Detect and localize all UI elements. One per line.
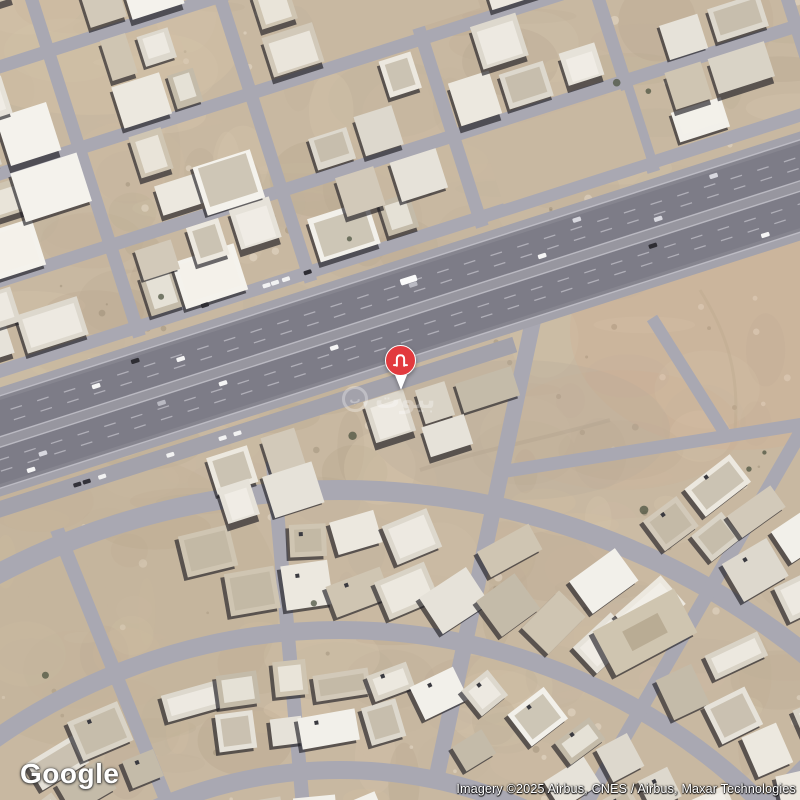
satellite-imagery	[0, 0, 800, 800]
marker-head	[385, 345, 416, 376]
map-viewport[interactable]: ب بيوت Google Imagery ©2025 Airbus, CNES…	[0, 0, 800, 800]
location-marker[interactable]	[385, 345, 416, 390]
imagery-attribution: Imagery ©2025 Airbus, CNES / Airbus, Max…	[456, 782, 796, 796]
google-logo[interactable]: Google	[20, 758, 119, 790]
home-icon	[391, 351, 410, 370]
marker-tail	[395, 375, 407, 390]
